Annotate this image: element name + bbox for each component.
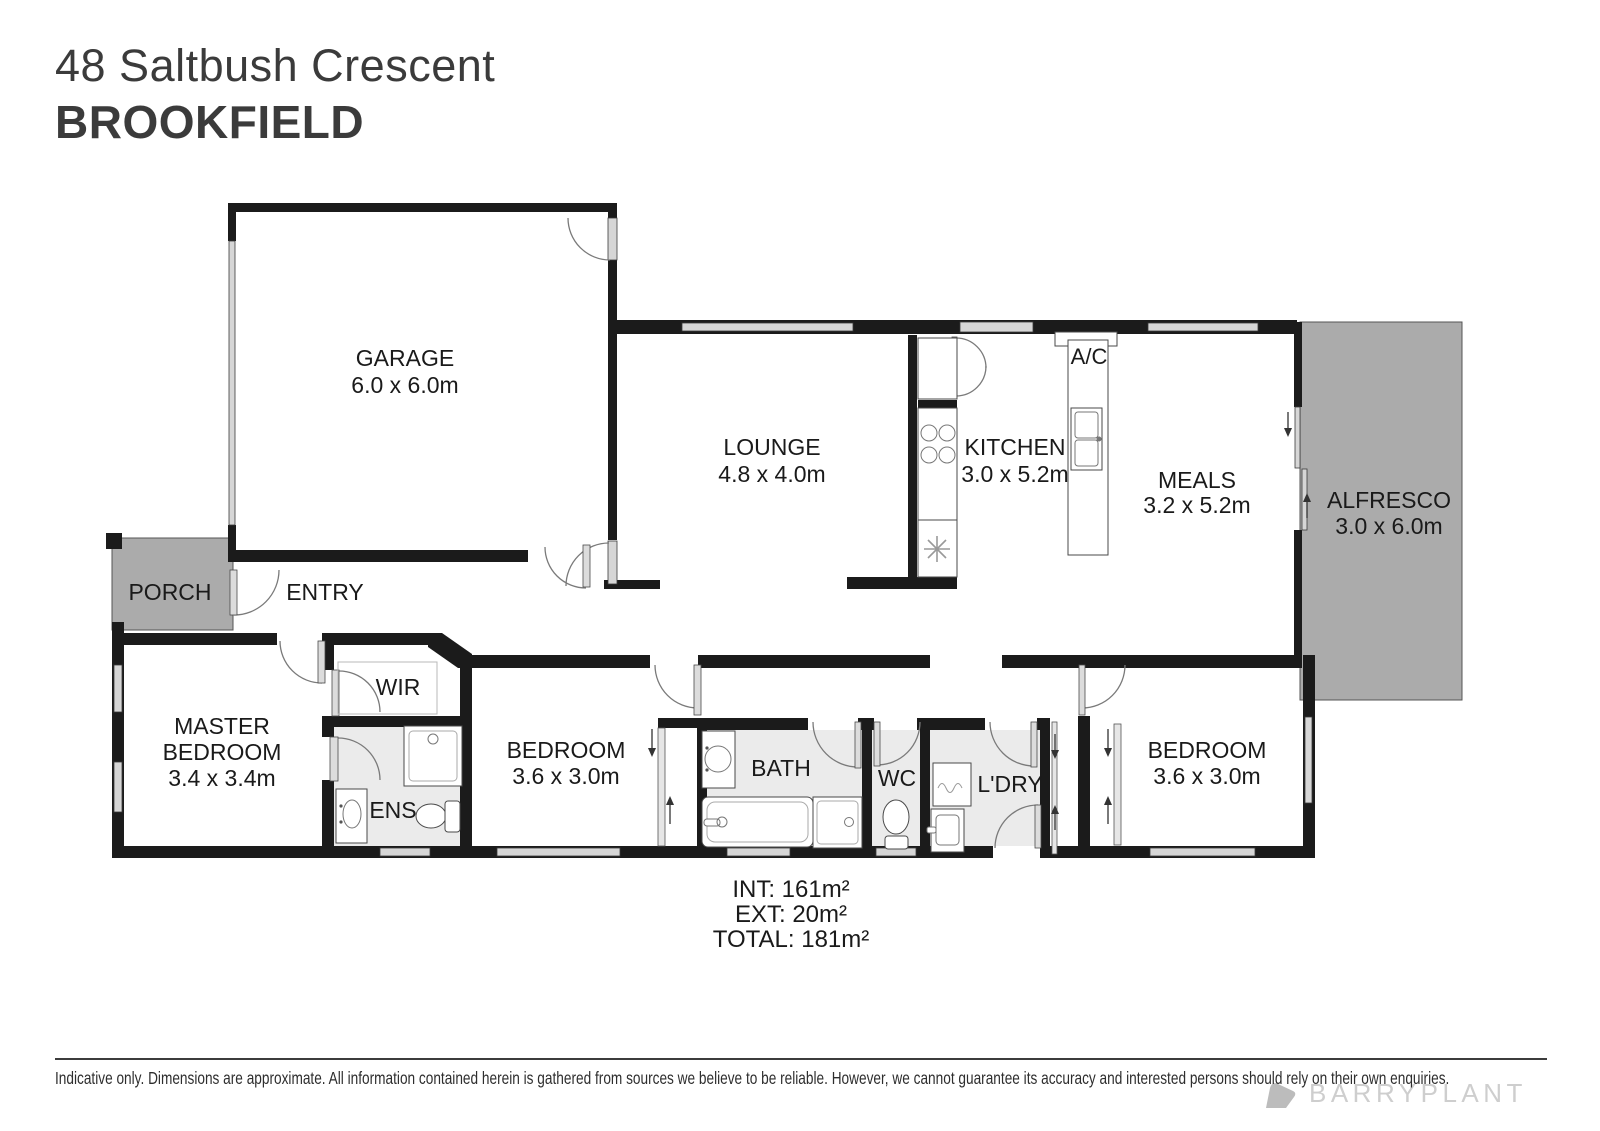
kitchen-label: KITCHEN xyxy=(965,434,1066,460)
door-jamb xyxy=(608,218,617,260)
external-area: EXT: 20m² xyxy=(735,901,847,928)
window xyxy=(682,323,853,331)
alfresco-label: ALFRESCO xyxy=(1327,487,1451,513)
wc-label: WC xyxy=(878,765,916,791)
door-jamb xyxy=(608,541,617,584)
window xyxy=(380,848,430,856)
door-leaf xyxy=(874,722,880,766)
window xyxy=(1150,848,1255,856)
door-leaf xyxy=(694,665,701,715)
master-bedroom-dims: 3.4 x 3.4m xyxy=(168,765,275,791)
area-summary: INT: 161m² EXT: 20m² TOTAL: 181m² xyxy=(713,876,870,953)
bedroom2-label: BEDROOM xyxy=(507,737,626,763)
bedroom2-dims: 3.6 x 3.0m xyxy=(512,763,619,789)
kitchen-counter xyxy=(918,408,957,520)
door-arc xyxy=(655,665,698,708)
door-leaf xyxy=(330,737,338,781)
disclaimer-text: Indicative only. Dimensions are approxim… xyxy=(55,1068,1449,1089)
arrow-up-icon xyxy=(1104,796,1112,824)
shower xyxy=(404,726,462,786)
garage-label: GARAGE xyxy=(356,345,454,371)
floorplan-page: 48 Saltbush Crescent BROOKFIELD xyxy=(0,0,1600,1131)
shower xyxy=(813,797,862,848)
garage-dims: 6.0 x 6.0m xyxy=(351,372,458,398)
door-arc xyxy=(280,641,322,683)
door-leaf xyxy=(1079,665,1085,715)
window xyxy=(727,848,790,856)
porch-label: PORCH xyxy=(128,579,211,605)
laundry-label: L'DRY xyxy=(977,771,1042,797)
window xyxy=(229,241,235,525)
washing-machine xyxy=(933,763,971,806)
door-leaf xyxy=(318,641,325,683)
floor-plan: GARAGE 6.0 x 6.0m LOUNGE 4.8 x 4.0m KITC… xyxy=(0,0,1600,1131)
kitchen-dims: 3.0 x 5.2m xyxy=(961,461,1068,487)
toilet-bowl-icon xyxy=(416,804,446,828)
robe-slider xyxy=(658,728,665,846)
vanity xyxy=(702,731,735,788)
ensuite-label: ENS xyxy=(369,797,416,823)
arrow-up-icon xyxy=(666,796,674,824)
door-arc xyxy=(234,570,279,615)
fridge-space xyxy=(918,338,957,399)
toilet-bowl-icon xyxy=(883,800,909,834)
arrow-down-icon xyxy=(648,729,656,757)
door-arc xyxy=(568,218,610,260)
door-arc xyxy=(545,547,586,588)
door-leaf xyxy=(855,722,861,768)
window xyxy=(960,322,1033,332)
toilet-tank xyxy=(445,801,460,832)
lounge-label: LOUNGE xyxy=(723,434,820,460)
door-leaf xyxy=(583,545,590,587)
meals-label: MEALS xyxy=(1158,467,1236,493)
kitchen-sink-icon xyxy=(1071,408,1102,470)
wc-fixtures xyxy=(883,800,909,849)
robe-slider xyxy=(1114,724,1121,845)
sliding-door-panel xyxy=(1295,407,1300,468)
door-arc xyxy=(956,366,986,396)
door-leaf xyxy=(1031,722,1037,767)
alfresco-dims: 3.0 x 6.0m xyxy=(1335,513,1442,539)
outdoor-areas xyxy=(112,322,1462,700)
window xyxy=(1148,323,1258,331)
door-arc xyxy=(339,671,380,712)
door-leaf xyxy=(230,570,237,615)
door-leaf xyxy=(1035,805,1041,848)
wir-label: WIR xyxy=(376,674,421,700)
arrow-down-icon xyxy=(1284,412,1292,437)
meals-dims: 3.2 x 5.2m xyxy=(1143,492,1250,518)
window xyxy=(497,848,620,856)
bedroom3-dims: 3.6 x 3.0m xyxy=(1153,763,1260,789)
arrow-down-icon xyxy=(1104,729,1112,757)
vanity xyxy=(336,789,367,843)
door-arc xyxy=(956,338,986,368)
ac-label: A/C xyxy=(1071,344,1108,369)
footer-divider xyxy=(55,1058,1547,1060)
toilet-tank xyxy=(885,836,908,849)
entry-label: ENTRY xyxy=(286,579,364,605)
total-area: TOTAL: 181m² xyxy=(713,926,870,953)
lounge-dims: 4.8 x 4.0m xyxy=(718,461,825,487)
master-bedroom-label-line2: BEDROOM xyxy=(163,739,282,765)
bedroom3-label: BEDROOM xyxy=(1148,737,1267,763)
window xyxy=(1305,717,1312,803)
door-arc xyxy=(1082,665,1125,708)
window xyxy=(114,762,122,812)
window xyxy=(114,665,122,712)
tap-icon xyxy=(927,827,936,833)
bath-label: BATH xyxy=(751,755,811,781)
internal-area: INT: 161m² xyxy=(732,876,849,903)
master-bedroom-label-line1: MASTER xyxy=(174,713,270,739)
